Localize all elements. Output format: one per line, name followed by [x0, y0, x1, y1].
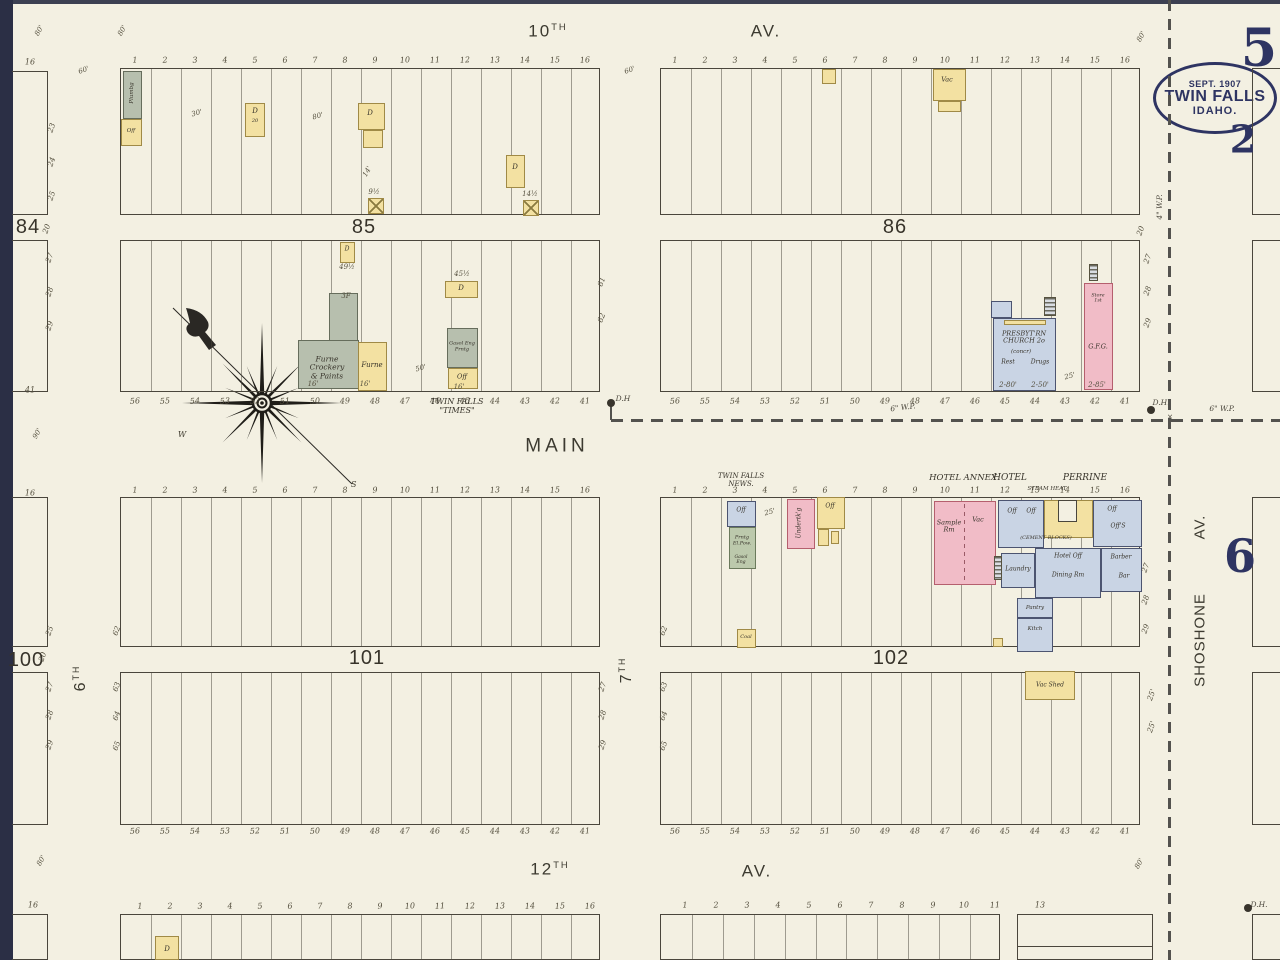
lot-number: 50 [310, 827, 321, 837]
city-block [12, 672, 48, 825]
building-label: PRESBYT'RN CHURCH 2o [1002, 331, 1046, 346]
lot-line [991, 69, 992, 214]
building [831, 531, 839, 544]
lot-number: 54 [190, 397, 201, 407]
block-number: 100 [8, 649, 44, 671]
lot-number: 11 [430, 486, 441, 496]
lot-number: 6 [287, 902, 293, 911]
lot-line [511, 673, 512, 824]
lot-number: 16 [28, 902, 38, 911]
lot-line [871, 673, 872, 824]
lot-number: 11 [970, 56, 981, 66]
lot-line [481, 498, 482, 646]
street-label: MAIN [525, 435, 589, 456]
lot-line [901, 241, 902, 391]
lot-number: 47 [400, 827, 411, 837]
block-number: 84 [16, 216, 40, 238]
lot-number: 55 [700, 397, 711, 407]
lot-number: 51 [280, 397, 291, 407]
lot-line [721, 673, 722, 824]
building [1004, 320, 1046, 325]
lot-line [692, 915, 693, 959]
lot-line [939, 915, 940, 959]
building-label: Off [457, 373, 467, 380]
city-block [660, 68, 1140, 215]
sheet-top-border [0, 0, 1280, 4]
building-label: D [512, 164, 518, 172]
street-label: 6TH [72, 665, 90, 692]
lot-number: 52 [790, 397, 801, 407]
lot-number: 41 [580, 397, 591, 407]
lot-number: 8 [882, 56, 888, 65]
lot-line [751, 241, 752, 391]
lot-number: 16 [1120, 56, 1131, 66]
lot-number: 51 [280, 827, 291, 837]
lot-line [451, 673, 452, 824]
pipe-line [964, 504, 965, 584]
lot-number: 6 [822, 56, 828, 65]
lot-number: 12 [1000, 56, 1011, 66]
lot-number: 56 [130, 827, 141, 837]
lot-line [1051, 69, 1052, 214]
dimension-label: 80' [34, 24, 46, 37]
street-label: 7TH [618, 657, 636, 684]
hydrant-marker [1244, 904, 1252, 912]
lot-number: 3 [744, 901, 750, 910]
lot-line [785, 915, 786, 959]
lot-number: 50 [310, 397, 321, 407]
building-label: D [458, 285, 464, 293]
lot-number: 14 [525, 902, 536, 912]
block-number: 102 [873, 647, 909, 669]
building-label: Gasol Eng Prntg [449, 341, 475, 352]
dimension-label: 49½ [339, 264, 355, 272]
building-label: Laundry [1005, 567, 1030, 574]
building-label: Vac [941, 76, 953, 83]
building [523, 200, 539, 216]
lot-line [781, 241, 782, 391]
lot-number: 50 [850, 827, 861, 837]
lot-number: 11 [430, 56, 441, 66]
city-block [1252, 240, 1280, 392]
lot-line [241, 673, 242, 824]
lot-number: 46 [970, 827, 981, 837]
building-label: HOTEL ANNEX [929, 474, 997, 484]
lot-line [481, 69, 482, 214]
building [991, 301, 1012, 318]
lot-number: 48 [910, 827, 921, 837]
lot-line [271, 673, 272, 824]
lot-line [451, 915, 452, 959]
lot-number: 52 [250, 827, 261, 837]
lot-number: 45 [460, 827, 471, 837]
lot-number: 8 [342, 486, 348, 495]
lot-number-side: 27 [1142, 253, 1153, 265]
lot-number: 3 [192, 56, 198, 65]
street-label: AV. [751, 21, 782, 40]
city-block [12, 497, 48, 647]
dimension-label: 80' [1136, 30, 1148, 43]
building-label: Drugs [1031, 360, 1049, 367]
lot-line [751, 673, 752, 824]
lot-number: 51 [820, 827, 831, 837]
dimension-label: 45½ [454, 271, 470, 279]
lot-line [391, 673, 392, 824]
lot-number: 42 [550, 827, 561, 837]
lot-line [571, 915, 572, 959]
dimension-label: 2-85' [1088, 382, 1106, 390]
lot-number: 14 [520, 56, 531, 66]
water-pipe-label: D.H. [1250, 901, 1267, 909]
building-label: Sample Rm [937, 520, 962, 535]
city-block [12, 914, 48, 960]
lot-number: 54 [730, 827, 741, 837]
lot-number-side: 29 [1140, 623, 1151, 635]
lot-line [271, 69, 272, 214]
lot-number: 48 [370, 397, 381, 407]
lot-line [391, 69, 392, 214]
lot-line [991, 673, 992, 824]
street-label: 12TH [530, 859, 569, 878]
lot-number: 5 [252, 486, 258, 495]
lot-line [721, 241, 722, 391]
lot-line [151, 498, 152, 646]
building-label: Off [1007, 509, 1016, 516]
dimension-label: 60' [78, 65, 91, 76]
street-label-suffix: TH [553, 860, 569, 870]
lot-line [931, 69, 932, 214]
lot-line [241, 69, 242, 214]
lot-number: 49 [340, 397, 351, 407]
lot-number: 1 [137, 902, 143, 911]
stairs-hatch [1089, 264, 1098, 281]
lot-line [211, 498, 212, 646]
dimension-label: 3F [341, 293, 350, 301]
building-label: G.F.G. [1088, 343, 1108, 350]
building-label: (concr) [1011, 349, 1031, 355]
lot-number: 12 [460, 486, 471, 496]
lot-line [211, 673, 212, 824]
lot-number: 9 [912, 56, 918, 65]
building-label: Vac [972, 516, 984, 523]
lot-line [361, 915, 362, 959]
lot-line [721, 69, 722, 214]
dimension-label: 16' [308, 381, 319, 389]
building-label: Hotel Off [1054, 554, 1082, 561]
lot-line [841, 241, 842, 391]
lot-line [541, 241, 542, 391]
lot-line [301, 498, 302, 646]
lot-number: 5 [806, 901, 812, 910]
lot-number: 4 [762, 56, 768, 65]
lot-line [181, 673, 182, 824]
lot-line [451, 498, 452, 646]
lot-number-side: 20 [1135, 225, 1146, 237]
lot-line [541, 69, 542, 214]
building-label: Barber [1110, 555, 1131, 562]
street-label: 10TH [528, 21, 567, 40]
lot-line [421, 915, 422, 959]
lot-number: 7 [852, 56, 858, 65]
lot-line [691, 498, 692, 646]
lot-line [816, 915, 817, 959]
city-block [120, 914, 600, 960]
lot-number: 4 [775, 901, 781, 910]
lot-number: 43 [1060, 397, 1071, 407]
dimension-label: 2-50' [1031, 382, 1049, 390]
lot-number-side: 25' [1146, 688, 1158, 702]
building [818, 529, 829, 546]
city-block [120, 672, 600, 825]
lot-line [541, 673, 542, 824]
building-label: TWIN FALLS NEWS. [718, 473, 764, 489]
lot-number: 8 [342, 56, 348, 65]
building [822, 69, 836, 84]
building-label: Pantry [1026, 605, 1044, 611]
lot-line [908, 915, 909, 959]
lot-number: 55 [160, 397, 171, 407]
building-label: Off [1107, 507, 1116, 514]
lot-line [811, 241, 812, 391]
sheet-number: 6 [1224, 531, 1256, 583]
lot-number: 16 [585, 902, 596, 912]
lot-number: 4 [222, 486, 228, 495]
dimension-label: 2-80' [999, 382, 1017, 390]
city-block [12, 71, 48, 215]
lot-line [451, 69, 452, 214]
water-pipe-label: 6" W.P. [1209, 405, 1234, 413]
lot-number: 44 [490, 827, 501, 837]
lot-number: 16 [25, 490, 35, 499]
water-pipe-label: D.H [616, 395, 631, 403]
building [933, 69, 966, 101]
lot-number: 42 [1090, 827, 1101, 837]
lot-number: 47 [400, 397, 411, 407]
building [938, 101, 961, 112]
block-number: 85 [352, 216, 376, 238]
lot-number: 54 [190, 827, 201, 837]
lot-line [1021, 673, 1022, 824]
lot-number: 10 [959, 901, 970, 911]
building-label: Undertk'g [797, 508, 804, 539]
lot-line [181, 498, 182, 646]
street-label-suffix: TH [71, 665, 81, 681]
lot-number: 12 [1000, 486, 1011, 496]
lot-number: 53 [220, 397, 231, 407]
water-pipe-label: 6" W.P. [890, 402, 916, 413]
lot-line [871, 69, 872, 214]
building [934, 501, 996, 585]
lot-number: 10 [940, 56, 951, 66]
lot-line [901, 498, 902, 646]
dimension-label: 9½ [368, 189, 379, 197]
lot-line [361, 673, 362, 824]
lot-line [811, 673, 812, 824]
stairs-hatch [994, 556, 1002, 580]
building [993, 638, 1003, 647]
lot-number: 13 [490, 56, 501, 66]
lot-number: 46 [430, 827, 441, 837]
building [1058, 500, 1077, 522]
lot-line [151, 241, 152, 391]
dimension-label: 80' [1134, 857, 1146, 870]
lot-line [481, 915, 482, 959]
lot-line [481, 673, 482, 824]
building [368, 198, 384, 214]
lot-number: 41 [1120, 827, 1131, 837]
lot-number: 2 [162, 486, 168, 495]
city-block [1252, 672, 1280, 825]
lot-line [301, 69, 302, 214]
stamp-city: TWIN FALLS [1165, 89, 1266, 106]
lot-number: 9 [372, 56, 378, 65]
lot-number: 56 [670, 827, 681, 837]
city-block [12, 240, 48, 392]
svg-text:S: S [351, 480, 357, 489]
lot-line [331, 915, 332, 959]
lot-number: 6 [282, 486, 288, 495]
lot-line [271, 498, 272, 646]
lot-number: 15 [550, 56, 561, 66]
lot-number: 43 [520, 397, 531, 407]
lot-line [871, 241, 872, 391]
lot-line [571, 241, 572, 391]
lot-line [931, 241, 932, 391]
lot-number: 11 [990, 901, 1001, 911]
lot-number: 9 [930, 901, 936, 910]
lot-line [511, 241, 512, 391]
lot-number: 14 [520, 486, 531, 496]
block-number: 101 [349, 647, 385, 669]
lot-line [361, 498, 362, 646]
lot-line [391, 915, 392, 959]
lot-line [481, 241, 482, 391]
lot-number: 53 [760, 397, 771, 407]
lot-number: 45 [1000, 397, 1011, 407]
city-block [1252, 914, 1280, 960]
street-label: AV. [1193, 515, 1210, 540]
lot-number: 14 [1060, 56, 1071, 66]
lot-line [151, 915, 152, 959]
lot-line [781, 673, 782, 824]
lot-line [841, 69, 842, 214]
lot-number: 52 [250, 397, 261, 407]
lot-number: 2 [162, 56, 168, 65]
building-label: TWIN FALLS "TIMES" [431, 398, 484, 416]
lot-number: 8 [347, 902, 353, 911]
lot-line [211, 69, 212, 214]
lot-line [151, 673, 152, 824]
lot-number: 4 [222, 56, 228, 65]
lot-number: 55 [700, 827, 711, 837]
lot-number: 3 [192, 486, 198, 495]
lot-number: 2 [702, 486, 708, 495]
dimension-label: 90' [32, 427, 44, 440]
lot-line [241, 241, 242, 391]
lot-line [511, 915, 512, 959]
lot-number: 46 [970, 397, 981, 407]
water-pipe-label: D.H. [1152, 399, 1169, 407]
lot-number: 1 [132, 56, 138, 65]
lot-number: 12 [460, 56, 471, 66]
lot-line [721, 498, 722, 646]
lot-number: 44 [490, 397, 501, 407]
pipe-line [611, 419, 1280, 422]
lot-number: 54 [730, 397, 741, 407]
dimension-label: 14½ [522, 191, 538, 199]
lot-line [301, 673, 302, 824]
lot-number: 16 [580, 56, 591, 66]
lot-number: 9 [372, 486, 378, 495]
lot-number: 43 [1060, 827, 1071, 837]
lot-line [331, 673, 332, 824]
building-label: 20 [252, 119, 258, 125]
lot-line [511, 69, 512, 214]
lot-number: 7 [868, 901, 874, 910]
lot-line [1021, 69, 1022, 214]
sheet-number: 2 [1230, 119, 1256, 162]
lot-line [691, 241, 692, 391]
lot-line [691, 69, 692, 214]
lot-number: 13 [1030, 56, 1041, 66]
lot-number: 10 [940, 486, 951, 496]
lot-line [421, 69, 422, 214]
lot-number: 49 [340, 827, 351, 837]
building-label: Rest [1001, 360, 1015, 367]
lot-line [811, 69, 812, 214]
lot-line [181, 69, 182, 214]
lot-line [781, 69, 782, 214]
lot-number: 44 [1030, 827, 1041, 837]
lot-line [331, 69, 332, 214]
lot-line [901, 673, 902, 824]
lot-number: 42 [550, 397, 561, 407]
lot-number: 10 [400, 486, 411, 496]
dimension-label: 60' [624, 65, 637, 76]
dimension-label: 80' [117, 24, 129, 37]
lot-line [391, 498, 392, 646]
lot-line [571, 69, 572, 214]
lot-line [571, 498, 572, 646]
lot-number: 3 [197, 902, 203, 911]
building-label: STEAM HEAT [1028, 486, 1067, 492]
lot-line [211, 241, 212, 391]
building-label: Coal [740, 635, 751, 641]
pipe-line [610, 406, 612, 420]
lot-number: 4 [227, 902, 233, 911]
lot-line [871, 498, 872, 646]
building-label: D [252, 108, 258, 116]
building [1017, 618, 1053, 652]
building-label: Off [736, 508, 745, 515]
lot-number: 13 [495, 902, 506, 912]
lot-number: 6 [282, 56, 288, 65]
building-label: D [345, 247, 350, 254]
lot-line [421, 498, 422, 646]
lot-number: 11 [970, 486, 981, 496]
building [363, 130, 383, 148]
lot-number: 56 [130, 397, 141, 407]
lot-number: 42 [1090, 397, 1101, 407]
dimension-label: 16' [360, 381, 371, 389]
lot-number: 41 [1120, 397, 1131, 407]
lot-line [271, 915, 272, 959]
dimension-label: 16' [454, 384, 465, 392]
lot-line [541, 915, 542, 959]
building-label: Vac Shed [1036, 683, 1064, 690]
lot-number: 5 [792, 56, 798, 65]
hydrant-marker [607, 399, 615, 407]
